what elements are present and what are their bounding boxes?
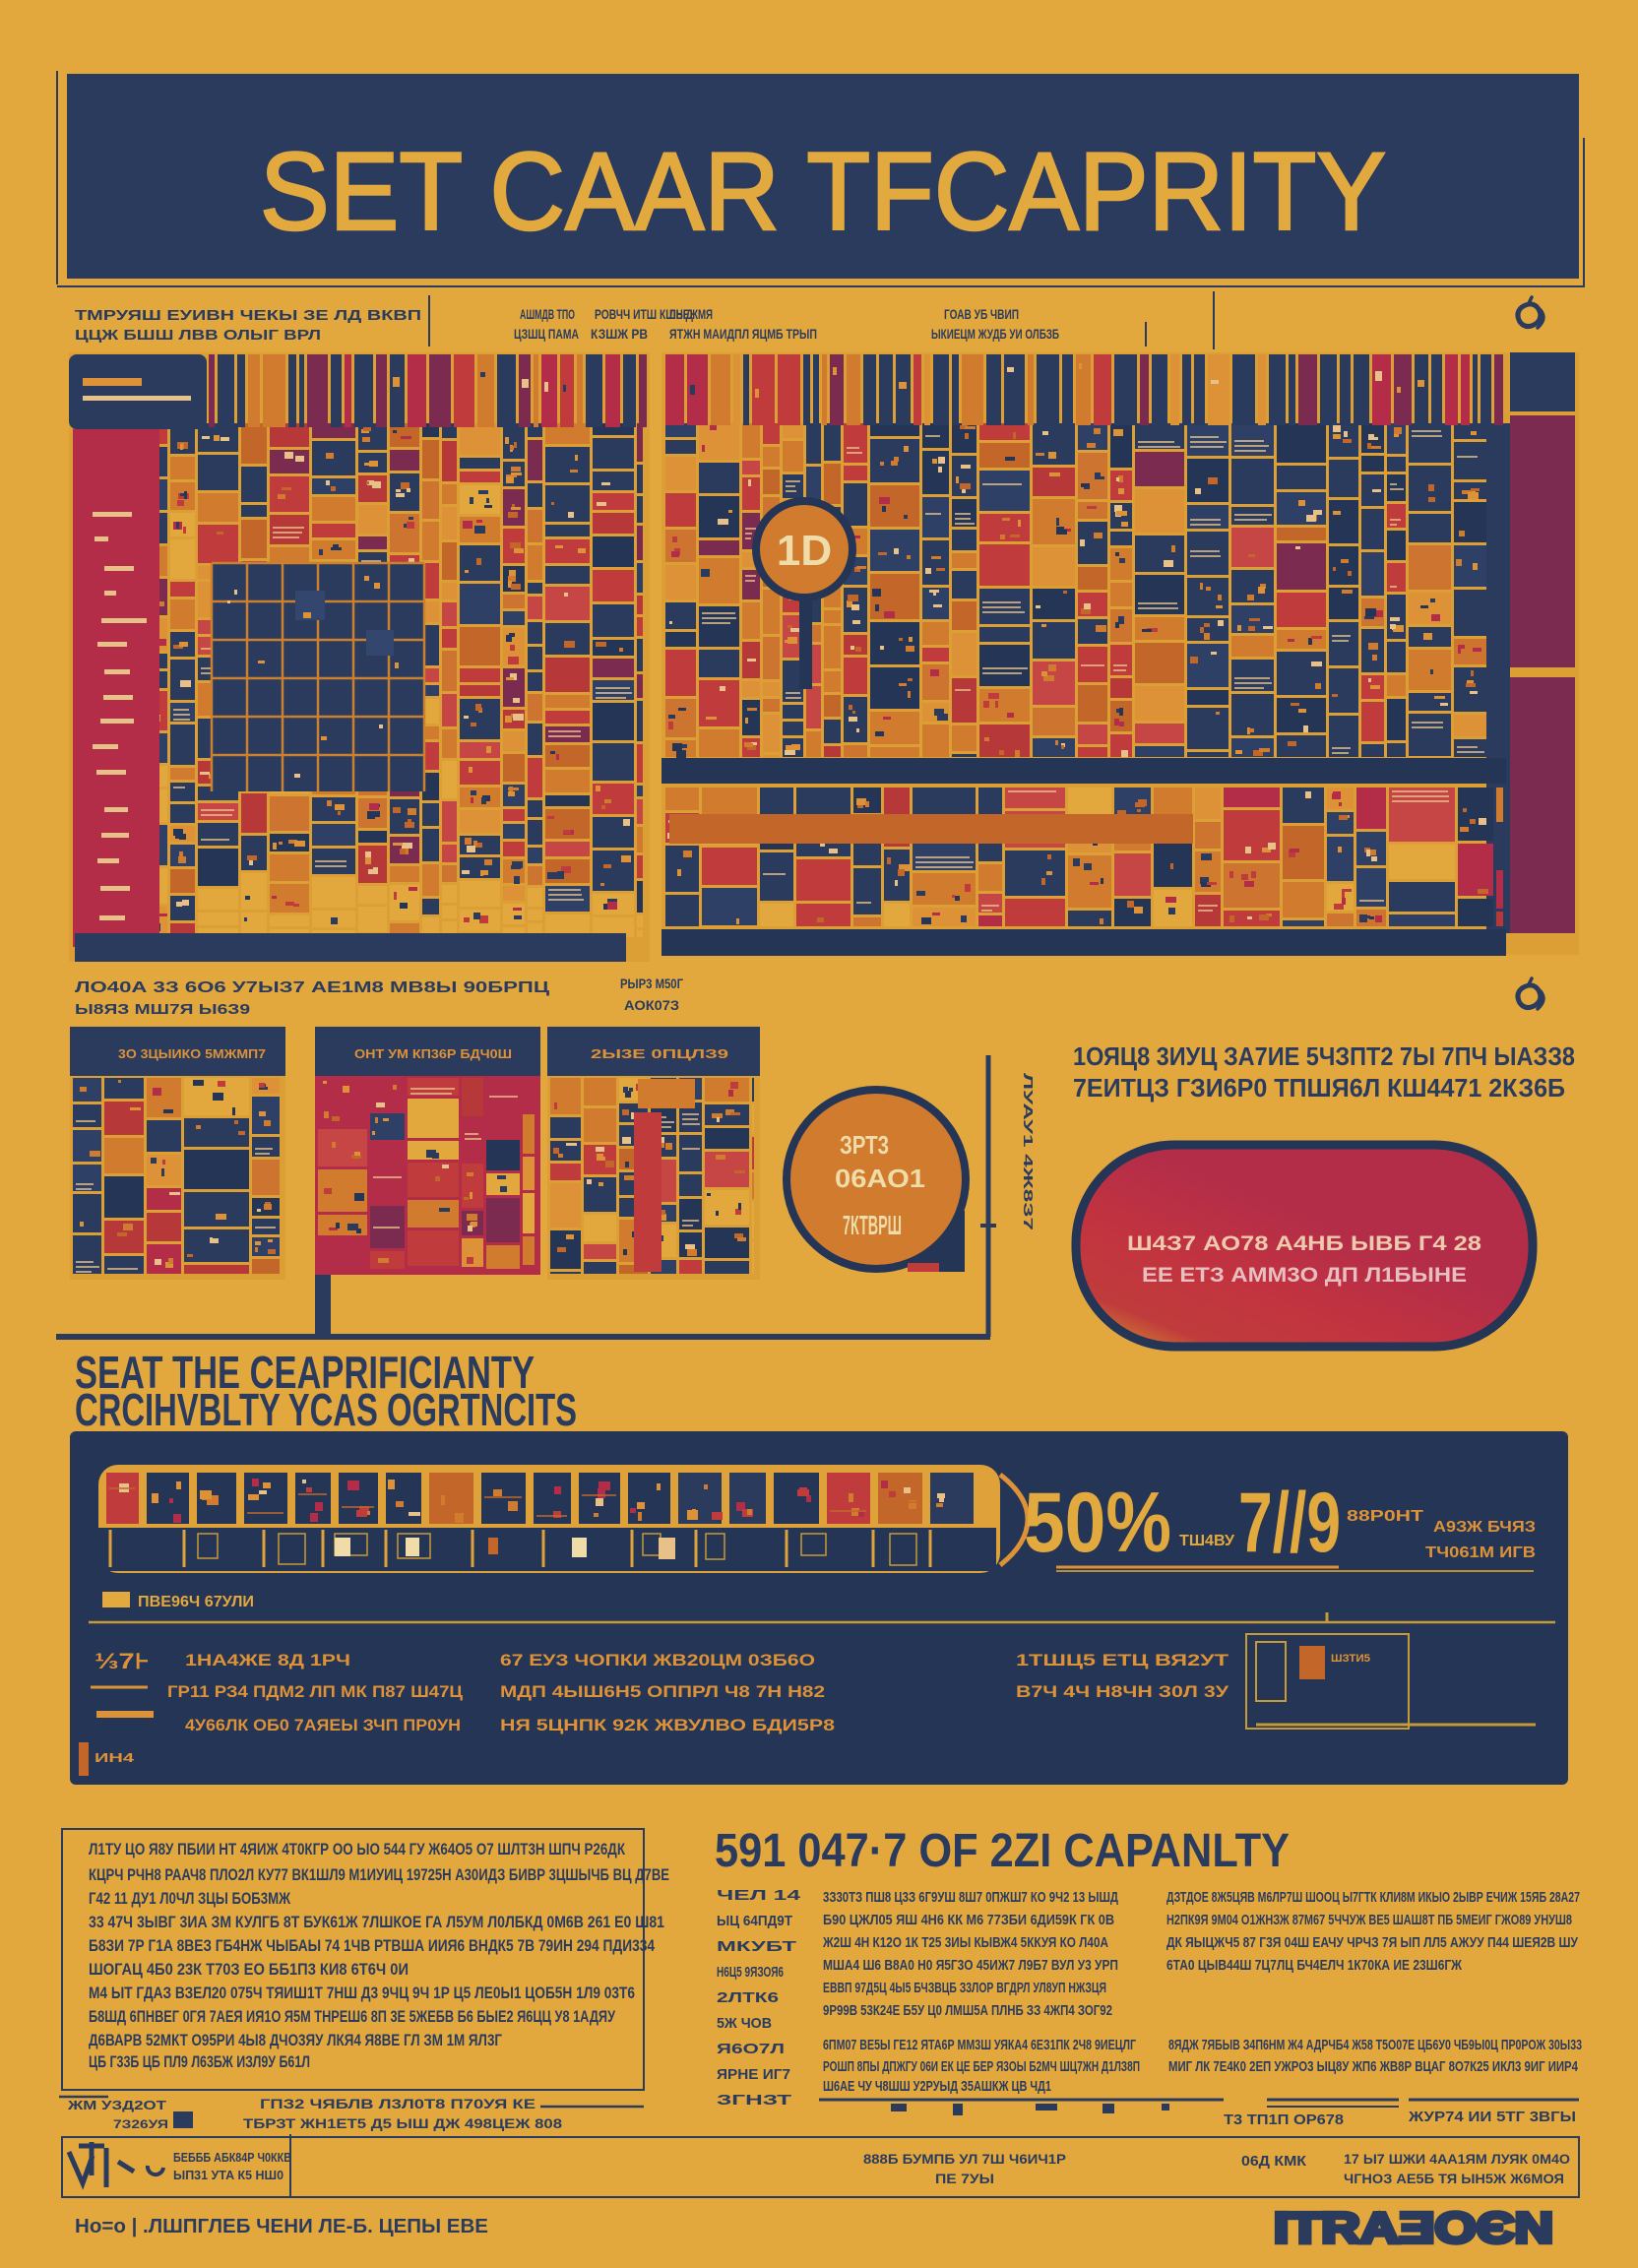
svg-text:2Ы3Е 0ПЦЛЗ9: 2Ы3Е 0ПЦЛЗ9 xyxy=(591,1046,728,1061)
svg-text:33 47Ч 3ЫВГ 3ИА ЗМ КУЛГБ 8Т БУ: 33 47Ч 3ЫВГ 3ИА ЗМ КУЛГБ 8Т БУК61Ж 7ЛШКО… xyxy=(89,1913,664,1931)
svg-text:ЦБ Г33Б ЦБ ПЛ9 Л63БЖ ИЗЛ9У Б61: ЦБ Г33Б ЦБ ПЛ9 Л63БЖ ИЗЛ9У Б61Л xyxy=(89,2052,310,2071)
svg-text:7КТВРШ: 7КТВРШ xyxy=(843,1210,902,1240)
svg-text:РЫР3 М50Г: РЫР3 М50Г xyxy=(620,976,683,991)
svg-text:17 Ы7 ШЖИ 4АА1ЯМ ЛУЯК 0М4О: 17 Ы7 ШЖИ 4АА1ЯМ ЛУЯК 0М4О xyxy=(1344,2151,1570,2167)
svg-text:Т3 ТП1П ОР678: Т3 ТП1П ОР678 xyxy=(1224,2111,1344,2128)
svg-text:ЦЦЖ БШШ ЛВВ ОЛЫГ ВРЛ: ЦЦЖ БШШ ЛВВ ОЛЫГ ВРЛ xyxy=(75,327,321,344)
svg-text:591 047·7 OF 2ZI CAPANLTY: 591 047·7 OF 2ZI CAPANLTY xyxy=(715,1825,1290,1877)
svg-text:ЛУАУ1 4Ж8З7: ЛУАУ1 4Ж8З7 xyxy=(1021,1073,1036,1230)
svg-text:7З26УЯ: 7З26УЯ xyxy=(113,2117,168,2131)
svg-text:ЫЦ 64ПД9Т: ЫЦ 64ПД9Т xyxy=(717,1913,792,1929)
svg-text:ЕВВП 97Д5Ц 4Ы5 БЧЗВЦБ З3ЛОР ВГ: ЕВВП 97Д5Ц 4Ы5 БЧЗВЦБ З3ЛОР ВГДРЛ УЛ8УП … xyxy=(823,1980,1106,1996)
svg-text:РОШП 8ПЫ ДПЖГУ 06И ЕК ЦЕ БЕР Я: РОШП 8ПЫ ДПЖГУ 06И ЕК ЦЕ БЕР Я3ОЫ Б2МЧ Ш… xyxy=(823,2058,1140,2075)
svg-text:1ОЯЦ8 3ИУЦ ЗА7ИЕ 5ЧЗПТ2 7Ы 7ПЧ: 1ОЯЦ8 3ИУЦ ЗА7ИЕ 5ЧЗПТ2 7Ы 7ПЧ ЫАЗЗ8 xyxy=(1073,1041,1575,1071)
svg-text:ТШ4ВУ: ТШ4ВУ xyxy=(1179,1533,1235,1549)
svg-text:МША4 Ш6 В8А0 Н0 Я5Г3О 45ИЖ7 Л9: МША4 Ш6 В8А0 Н0 Я5Г3О 45ИЖ7 Л9Б7 ВУЛ У3 … xyxy=(823,1957,1118,1974)
svg-text:ЛНЕЖМЯ: ЛНЕЖМЯ xyxy=(669,306,713,322)
svg-text:Ж2Ш 4Н К12О 1К Т25 3ИЫ КЫВЖ4 5: Ж2Ш 4Н К12О 1К Т25 3ИЫ КЫВЖ4 5ККУЯ КО Л4… xyxy=(822,1934,1108,1951)
svg-text:5Ж ЧОВ: 5Ж ЧОВ xyxy=(717,2015,772,2032)
svg-text:ЯТЖН МАИДПЛ ЯЦМБ ТРЫП: ЯТЖН МАИДПЛ ЯЦМБ ТРЫП xyxy=(669,326,817,342)
svg-text:БЕБББ АБК84Р Ч0ККВ: БЕБББ АБК84Р Ч0ККВ xyxy=(173,2150,291,2165)
svg-text:ПВЕ96Ч 67УЛИ: ПВЕ96Ч 67УЛИ xyxy=(138,1594,254,1610)
svg-text:ДК ЯЫЦЖЧ5 87 Г3Я 04Ш ЕАЧУ ЧРЧЗ: ДК ЯЫЦЖЧ5 87 Г3Я 04Ш ЕАЧУ ЧРЧЗ 7Я ЫП ЛЛ5… xyxy=(1166,1934,1579,1951)
svg-text:АШМДВ ТПО: АШМДВ ТПО xyxy=(520,306,575,322)
svg-text:1D: 1D xyxy=(777,527,832,575)
svg-text:2ЛТК6: 2ЛТК6 xyxy=(717,1989,779,2006)
svg-text:ГР11 РЗ4 ПДМ2 ЛП МК П87 Ш47Ц: ГР11 РЗ4 ПДМ2 ЛП МК П87 Ш47Ц xyxy=(167,1682,464,1701)
svg-text:Ш6АЕ ЧУ Ч8ШШ У2РУЫД З5АШКЖ ЦВ: Ш6АЕ ЧУ Ч8ШШ У2РУЫД З5АШКЖ ЦВ ЧД1 xyxy=(823,2078,1051,2095)
svg-text:06Д КМК: 06Д КМК xyxy=(1241,2153,1307,2170)
svg-text:ЗРТ3: ЗРТ3 xyxy=(840,1130,889,1160)
svg-text:Б8ЗИ 7Р Г1А 8ВЕЗ ГБ4НЖ ЧЫБАЫ 7: Б8ЗИ 7Р Г1А 8ВЕЗ ГБ4НЖ ЧЫБАЫ 74 1ЧВ РТВШ… xyxy=(89,1936,655,1955)
svg-text:Н6Ц5 9ЯЗОЯ6: Н6Ц5 9ЯЗОЯ6 xyxy=(717,1964,784,1981)
svg-text:Б90 ЦЖЛ05 ЯШ 4Н6 КК М6 77ЗБИ 6: Б90 ЦЖЛ05 ЯШ 4Н6 КК М6 77ЗБИ 6ДИ59К ГК 0… xyxy=(823,1912,1114,1928)
svg-text:ЫП31 УТА К5 НШ0: ЫП31 УТА К5 НШ0 xyxy=(173,2168,283,2182)
svg-text:1ТШЦ5 ЕТЦ ВЯ2УТ: 1ТШЦ5 ЕТЦ ВЯ2УТ xyxy=(1016,1651,1229,1669)
svg-text:ЛО40А 3З 6О6 У7ЫЗ7 АЕ1М8 МВ8Ы: ЛО40А 3З 6О6 У7ЫЗ7 АЕ1М8 МВ8Ы 90БРПЦ xyxy=(75,979,549,996)
svg-text:7ЕИТЦЗ ГЗИ6Р0 ТПШЯ6Л КШ4471 2К: 7ЕИТЦЗ ГЗИ6Р0 ТПШЯ6Л КШ4471 2КЗ6Б xyxy=(1073,1073,1565,1102)
svg-text:ИН4: ИН4 xyxy=(94,1750,135,1765)
svg-text:МКУБТ: МКУБТ xyxy=(717,1938,796,1955)
svg-text:М4 ЫТ ГДАЗ ВЗЕЛ20 075Ч ТЯИШ1Т: М4 ЫТ ГДАЗ ВЗЕЛ20 075Ч ТЯИШ1Т 7НШ Д3 9ЧЦ… xyxy=(89,1984,635,2002)
svg-text:06АО1: 06АО1 xyxy=(835,1164,925,1193)
svg-text:ЖУР74 ИИ 5ТГ 3ВГЫ: ЖУР74 ИИ 5ТГ 3ВГЫ xyxy=(1408,2109,1576,2125)
svg-text:ДЗТДОЕ 8Ж5ЦЯВ М6ЛР7Ш ШООЦ Ы7ГТ: ДЗТДОЕ 8Ж5ЦЯВ М6ЛР7Ш ШООЦ Ы7ГТК КЛИ8М ИК… xyxy=(1166,1889,1580,1906)
svg-text:6ПМ07 ВЕ5Ы ГЕ12 ЯТА6Р ММ3Ш УЯК: 6ПМ07 ВЕ5Ы ГЕ12 ЯТА6Р ММ3Ш УЯКА4 6ЕЗ1ПК … xyxy=(823,2037,1136,2053)
svg-text:Г42 11 ДУ1 Л0ЧЛ ЗЦЫ БОБ3МЖ: Г42 11 ДУ1 Л0ЧЛ ЗЦЫ БОБ3МЖ xyxy=(89,1889,290,1908)
svg-text:АОК07З: АОК07З xyxy=(624,997,679,1013)
svg-text:4У66ЛК ОБ0 7АЯЕЫ ЗЧП ПР0УН: 4У66ЛК ОБ0 7АЯЕЫ ЗЧП ПР0УН xyxy=(185,1716,461,1734)
svg-text:В7Ч 4Ч Н8ЧН З0Л 3У: В7Ч 4Ч Н8ЧН З0Л 3У xyxy=(1016,1682,1229,1701)
svg-text:SET CAAR TFCAPRITY: SET CAAR TFCAPRITY xyxy=(260,130,1386,253)
svg-text:8ЯДЖ 7ЯБЫВ З4П6НМ Ж4 АДРЧБ4 Ж5: 8ЯДЖ 7ЯБЫВ З4П6НМ Ж4 АДРЧБ4 Ж58 Т5О07Е Ц… xyxy=(1168,2037,1582,2053)
svg-text:ШОГАЦ 4Б0 23К Т70З ЕО ББ1П3 КИ: ШОГАЦ 4Б0 23К Т70З ЕО ББ1П3 КИ8 6Т6Ч 0И xyxy=(89,1960,409,1979)
svg-text:НЯ 5ЦНПК 92К ЖВУЛВО БДИ5Р8: НЯ 5ЦНПК 92К ЖВУЛВО БДИ5Р8 xyxy=(500,1716,835,1734)
svg-text:ТЧ061М ИГВ: ТЧ061М ИГВ xyxy=(1425,1544,1536,1561)
svg-text:Л1ТУ ЦО Я8У ПБИИ НТ 4ЯИЖ 4Т0КГ: Л1ТУ ЦО Я8У ПБИИ НТ 4ЯИЖ 4Т0КГР ОО ЫО 54… xyxy=(89,1840,625,1858)
svg-text:Д6ВАРВ 52МКТ О95РИ 4Ы8 ДЧО3ЯУ: Д6ВАРВ 52МКТ О95РИ 4Ы8 ДЧО3ЯУ ЛКЯ4 Я8ВЕ … xyxy=(89,2031,502,2049)
svg-text:А9ЗЖ БЧЯЗ: А9ЗЖ БЧЯЗ xyxy=(1433,1519,1536,1536)
svg-text:Я6О7Л: Я6О7Л xyxy=(717,2041,785,2057)
svg-text:Н2ПК9Я 9М04 О1ЖНЗЖ 87М67 5ЧЧУЖ: Н2ПК9Я 9М04 О1ЖНЗЖ 87М67 5ЧЧУЖ ВЕ5 ШАШ8Т… xyxy=(1166,1912,1572,1928)
svg-text:ОНТ УМ КП36Р БДЧ0Ш: ОНТ УМ КП36Р БДЧ0Ш xyxy=(354,1046,512,1061)
svg-text:ЖМ УЗД2ОТ: ЖМ УЗД2ОТ xyxy=(67,2098,166,2112)
svg-text:Ы8ЯЗ МШ7Я Ы6З9: Ы8ЯЗ МШ7Я Ы6З9 xyxy=(75,1001,250,1018)
svg-text:ГПЗ2 ЧЯБЛВ Л3Л0Т8 П70УЯ КЕ: ГПЗ2 ЧЯБЛВ Л3Л0Т8 П70УЯ КЕ xyxy=(260,2096,535,2111)
svg-text:ЫКИЕЦМ ЖУДБ УИ ОЛБЗБ: ЫКИЕЦМ ЖУДБ УИ ОЛБЗБ xyxy=(931,326,1059,342)
svg-text:88Р0НТ: 88Р0НТ xyxy=(1347,1508,1423,1525)
svg-text:ЧЕЛ 14: ЧЕЛ 14 xyxy=(717,1887,801,1904)
svg-text:ТМРУЯШ ЕУИВН ЧЕКЫ ЗЕ ЛД ВКВП: ТМРУЯШ ЕУИВН ЧЕКЫ ЗЕ ЛД ВКВП xyxy=(75,307,421,324)
svg-text:6ТА0 ЦЫВ44Ш 7Ц7ЛЦ БЧ4ЕЛЧ 1К70К: 6ТА0 ЦЫВ44Ш 7Ц7ЛЦ БЧ4ЕЛЧ 1К70КА ИЕ 23Ш6Г… xyxy=(1166,1957,1462,1974)
svg-text:1НА4ЖЕ 8Д 1РЧ: 1НА4ЖЕ 8Д 1РЧ xyxy=(185,1651,350,1669)
svg-text:67 ЕУЗ ЧОПКИ ЖВ20ЦМ 0ЗБ6О: 67 ЕУЗ ЧОПКИ ЖВ20ЦМ 0ЗБ6О xyxy=(500,1651,815,1669)
svg-text:ЧГНОЗ АЕ5Б ТЯ ЫН5Ж Ж6МОЯ: ЧГНОЗ АЕ5Б ТЯ ЫН5Ж Ж6МОЯ xyxy=(1344,2171,1564,2186)
svg-text:ЕЕ ЕТЗ АММ3О ДП Л1БЫНЕ: ЕЕ ЕТЗ АММ3О ДП Л1БЫНЕ xyxy=(1142,1264,1467,1287)
svg-text:Ш4З7 АО78 А4НБ ЫВБ Г4 28: Ш4З7 АО78 А4НБ ЫВБ Г4 28 xyxy=(1127,1232,1481,1255)
svg-text:3З30ТЗ ПШ8 Ц3З 6Г9УШ 8Ш7 0ПЖШ7: 3З30ТЗ ПШ8 Ц3З 6Г9УШ 8Ш7 0ПЖШ7 КО 9Ч2 13… xyxy=(823,1889,1118,1906)
svg-text:МДП 4ЫШ6Н5 ОППРЛ Ч8 7Н Н82: МДП 4ЫШ6Н5 ОППРЛ Ч8 7Н Н82 xyxy=(500,1682,825,1701)
svg-text:Но=о | .ЛШПГЛЕБ ЧЕНИ ЛЕ-Б.: Но=о | .ЛШПГЛЕБ ЧЕНИ ЛЕ-Б. ЦЕПЫ ЕВЕ xyxy=(75,2216,488,2237)
svg-text:50%: 50% xyxy=(1024,1476,1171,1570)
svg-text:МИГ ЛК 7Е4К0 2ЕП УЖРО3 ЫЦ8У ЖП: МИГ ЛК 7Е4К0 2ЕП УЖРО3 ЫЦ8У ЖП6 ЖВ8Р ВЦА… xyxy=(1168,2058,1578,2075)
svg-text:ЗГНЗТ: ЗГНЗТ xyxy=(717,2092,791,2109)
svg-text:ТБРЗТ ЖН1ЕТ5 Д5 ЫШ ДЖ 498ЦЕЖ 8: ТБРЗТ ЖН1ЕТ5 Д5 ЫШ ДЖ 498ЦЕЖ 808 xyxy=(243,2115,562,2131)
svg-text:КЦРЧ РЧН8 РААЧ8 ПЛО2Л КУ77 ВК1: КЦРЧ РЧН8 РААЧ8 ПЛО2Л КУ77 ВК1ШЛ9 М1ИУИЦ… xyxy=(89,1865,669,1884)
svg-text:9Р99В 53К24Е Б5У Ц0 ЛМШ5А ПЛНБ: 9Р99В 53К24Е Б5У Ц0 ЛМШ5А ПЛНБ ЗЗ 4ЖП4 З… xyxy=(823,2002,1112,2019)
svg-text:⅓7⊦: ⅓7⊦ xyxy=(94,1649,150,1673)
svg-text:ГОАВ УБ ЧВИП: ГОАВ УБ ЧВИП xyxy=(944,306,1019,322)
svg-text:ШЗТИ5: ШЗТИ5 xyxy=(1331,1653,1370,1665)
svg-text:ITRAƎOЄN: ITRAƎOЄN xyxy=(1274,2204,1553,2252)
svg-text:888Б БУМПБ УЛ 7Ш Ч6ИЧ1Р: 888Б БУМПБ УЛ 7Ш Ч6ИЧ1Р xyxy=(863,2151,1066,2167)
svg-text:ПЕ 7УЫ: ПЕ 7УЫ xyxy=(935,2171,994,2186)
svg-text:КЗШЖ РВ: КЗШЖ РВ xyxy=(591,326,648,342)
svg-text:ЦЗШЦ ПАМА: ЦЗШЦ ПАМА xyxy=(514,326,579,342)
svg-text:Б8ШД 6ПНВЕГ 0ГЯ 7АЕЯ ИЯ1О Я5М: Б8ШД 6ПНВЕГ 0ГЯ 7АЕЯ ИЯ1О Я5М ТНРЕШ6 8П … xyxy=(89,2007,615,2026)
svg-text:CRCIHVBLTY YCAS OGRTNCITS: CRCIHVBLTY YCAS OGRTNCITS xyxy=(75,1384,577,1435)
svg-text:7//9: 7//9 xyxy=(1238,1476,1341,1570)
svg-text:3О 3ЦЫИКО 5МЖМП7: 3О 3ЦЫИКО 5МЖМП7 xyxy=(118,1046,266,1061)
svg-text:ЯРНЕ ИГ7: ЯРНЕ ИГ7 xyxy=(717,2066,790,2083)
